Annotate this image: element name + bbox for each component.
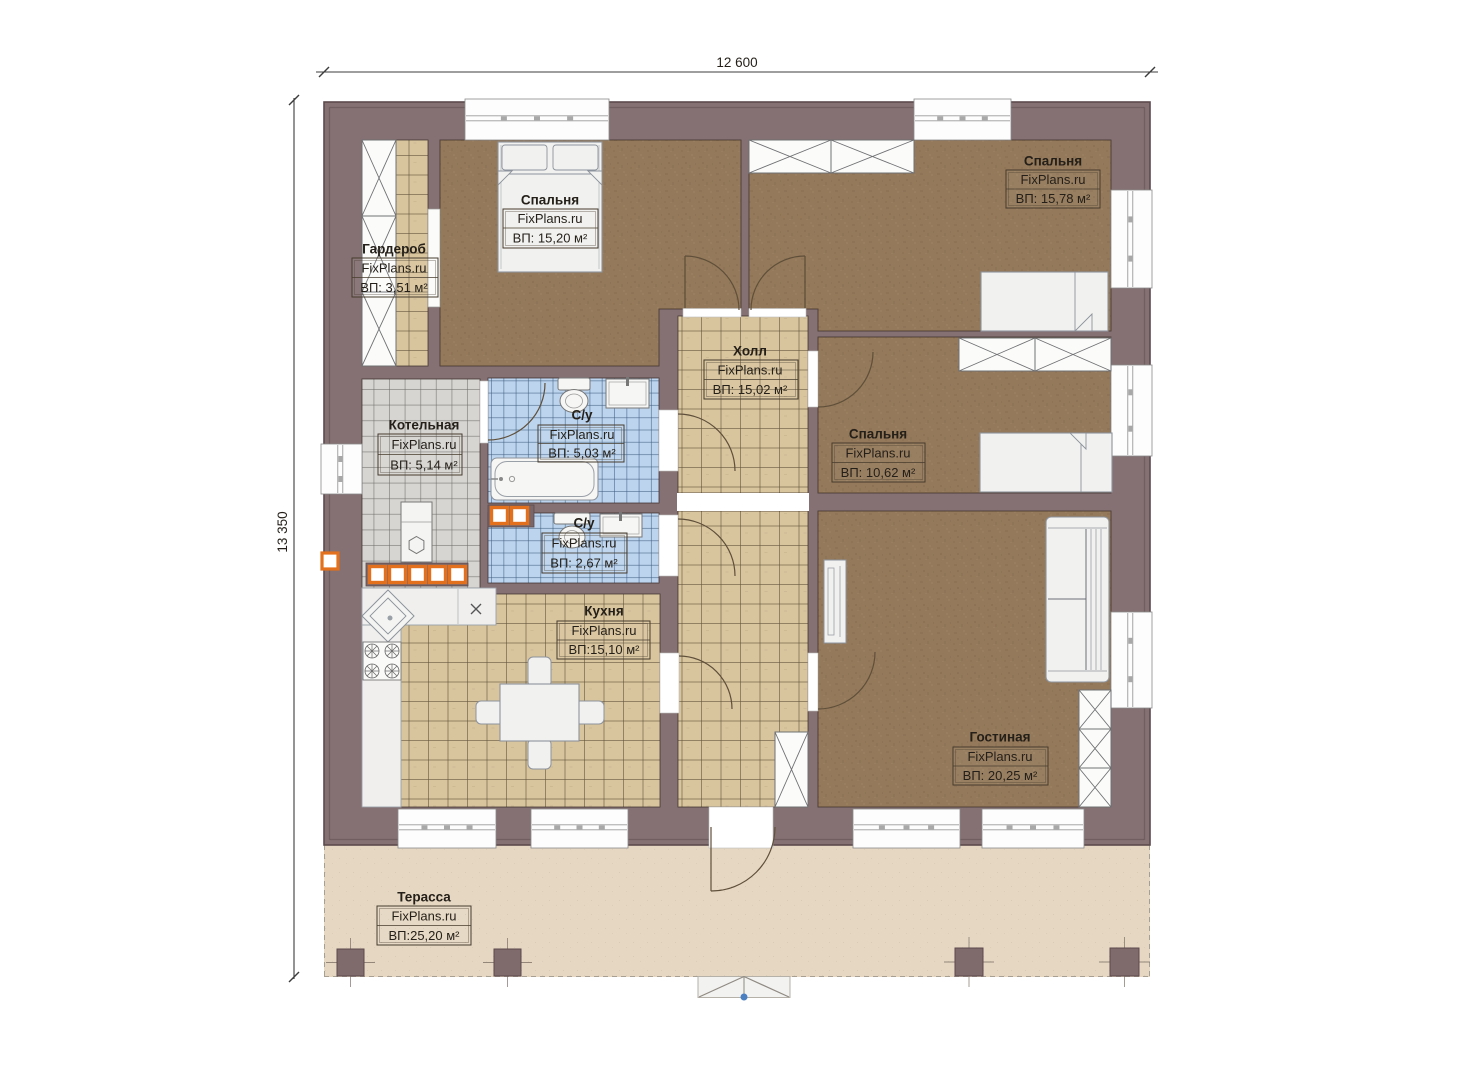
svg-text:Спальня: Спальня [521,193,579,208]
svg-text:ВП: 10,62 м²: ВП: 10,62 м² [841,465,916,480]
svg-text:Котельная: Котельная [389,418,460,433]
svg-text:ВП: 5,03 м²: ВП: 5,03 м² [548,445,616,460]
svg-text:Спальня: Спальня [849,427,907,442]
svg-text:С/у: С/у [573,516,595,531]
svg-text:FixPlans.ru: FixPlans.ru [845,445,910,460]
svg-text:13 350: 13 350 [275,511,290,552]
svg-text:С/у: С/у [571,408,593,423]
svg-text:ВП: 3,51 м²: ВП: 3,51 м² [360,280,428,295]
svg-text:Гардероб: Гардероб [362,242,426,257]
svg-text:FixPlans.ru: FixPlans.ru [549,427,614,442]
svg-text:Холл: Холл [733,344,767,359]
svg-text:ВП:25,20 м²: ВП:25,20 м² [388,928,460,943]
svg-text:Гостиная: Гостиная [969,730,1030,745]
svg-text:Терасса: Терасса [397,890,451,905]
svg-text:ВП: 15,78 м²: ВП: 15,78 м² [1016,191,1091,206]
svg-text:ВП: 15,02 м²: ВП: 15,02 м² [713,382,788,397]
svg-text:ВП: 20,25 м²: ВП: 20,25 м² [963,768,1038,783]
svg-text:FixPlans.ru: FixPlans.ru [717,362,782,377]
svg-text:Спальня: Спальня [1024,154,1082,169]
svg-text:ВП: 2,67 м²: ВП: 2,67 м² [550,556,618,571]
svg-text:FixPlans.ru: FixPlans.ru [1020,172,1085,187]
svg-text:ВП:15,10 м²: ВП:15,10 м² [568,642,640,657]
svg-text:FixPlans.ru: FixPlans.ru [571,623,636,638]
svg-text:FixPlans.ru: FixPlans.ru [967,749,1032,764]
svg-text:12 600: 12 600 [716,55,757,70]
svg-text:ВП: 5,14 м²: ВП: 5,14 м² [390,457,458,472]
svg-text:Кухня: Кухня [584,604,623,619]
svg-text:FixPlans.ru: FixPlans.ru [391,908,456,923]
svg-text:FixPlans.ru: FixPlans.ru [551,536,616,551]
svg-text:ВП: 15,20 м²: ВП: 15,20 м² [513,231,588,246]
svg-text:FixPlans.ru: FixPlans.ru [361,260,426,275]
svg-text:FixPlans.ru: FixPlans.ru [517,211,582,226]
svg-text:FixPlans.ru: FixPlans.ru [391,437,456,452]
